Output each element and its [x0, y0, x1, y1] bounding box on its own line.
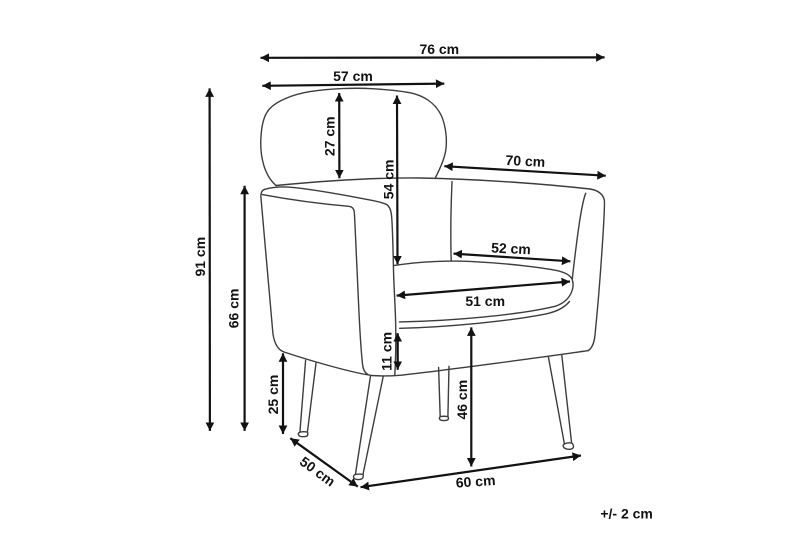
- svg-text:54 cm: 54 cm: [381, 160, 397, 200]
- svg-text:27 cm: 27 cm: [322, 116, 338, 156]
- svg-text:66 cm: 66 cm: [226, 289, 242, 329]
- svg-text:46 cm: 46 cm: [454, 380, 470, 420]
- svg-text:60 cm: 60 cm: [455, 472, 496, 491]
- svg-text:51 cm: 51 cm: [465, 293, 505, 309]
- svg-text:11 cm: 11 cm: [379, 332, 395, 371]
- svg-text:57 cm: 57 cm: [333, 68, 373, 84]
- svg-text:76 cm: 76 cm: [419, 41, 459, 57]
- svg-text:52 cm: 52 cm: [491, 240, 531, 258]
- svg-text:+/- 2 cm: +/- 2 cm: [600, 505, 653, 521]
- svg-text:25 cm: 25 cm: [265, 375, 281, 415]
- svg-text:91 cm: 91 cm: [192, 237, 208, 277]
- svg-text:70 cm: 70 cm: [505, 152, 545, 170]
